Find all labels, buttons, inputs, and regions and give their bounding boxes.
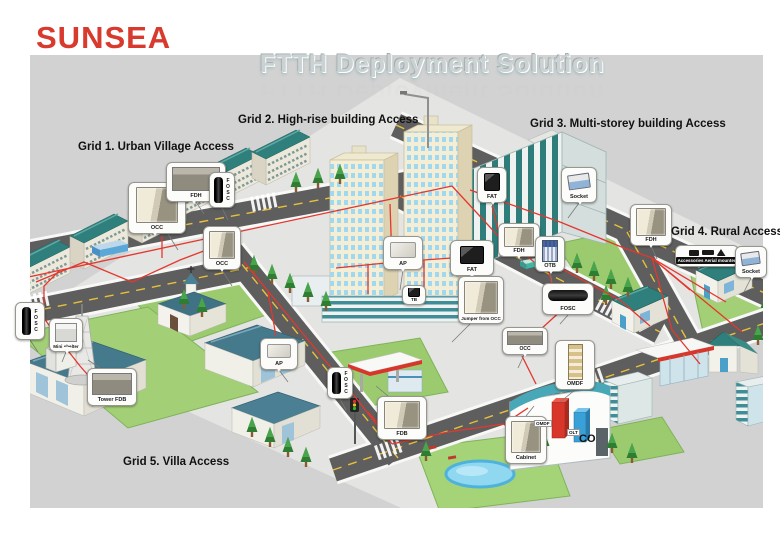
access-point-graphic (263, 341, 295, 361)
splice-closure-graphic (214, 177, 223, 203)
splice-closure-graphic (545, 286, 591, 306)
shelter-graphic (52, 321, 80, 344)
callout-label: Accessories Aerial mounted (676, 257, 739, 264)
callout-label: FOSC (560, 306, 575, 312)
callout-fosc-2: FOSC (542, 283, 594, 315)
access-point-graphic (386, 239, 420, 261)
callout-fosc-3: FOSC (15, 302, 45, 340)
aerial-accessories-graphic (678, 248, 736, 257)
callout-label: OCC (216, 261, 228, 267)
page-title: FTTH Deployment Solution (260, 50, 605, 79)
callout-label: OMDF (567, 381, 583, 387)
callout-label: TB (411, 297, 417, 302)
callout-label: FOSC (33, 309, 38, 333)
callout-otb: OTB (535, 236, 565, 272)
grid4-label: Grid 4. Rural Access (671, 226, 780, 238)
callout-label: Mini shelter (53, 344, 79, 349)
callout-omdf: OMDF (555, 340, 595, 390)
callout-label: Socket (570, 194, 588, 200)
callout-tower-fdb: Tower FDB (87, 368, 137, 406)
socket-graphic (738, 249, 764, 269)
callout-accessories: Accessories Aerial mounted (675, 245, 739, 267)
splice-closure-graphic (332, 372, 341, 394)
callout-label: Tower FDB (98, 397, 127, 403)
callout-label: FOSC (343, 371, 348, 395)
callout-label: AP (275, 361, 283, 367)
callout-fdh-2: FDH (498, 223, 540, 257)
callout-occ-3: OCC (502, 327, 548, 355)
omdf-rack-graphic (558, 343, 592, 381)
grid1-label: Grid 1. Urban Village Access (78, 141, 234, 153)
fat-device-graphic (453, 243, 491, 267)
sunsea-logo: SUNSEA (36, 20, 171, 56)
callout-jumper-from-occ: Jumper from OCC (458, 276, 504, 324)
fdh-cabinet-graphic (633, 207, 669, 237)
callout-label: FOSC (225, 178, 230, 202)
grid5-label: Grid 5. Villa Access (123, 456, 229, 468)
callout-socket-1: Socket (561, 167, 597, 203)
title-reflection: FTTH Deployment Solution (260, 78, 605, 107)
splice-closure-graphic (22, 307, 31, 335)
occ-cabinet-graphic (505, 330, 545, 347)
otb-splitter-graphic (538, 239, 562, 263)
grid3-label: Grid 3. Multi-storey building Access (530, 118, 726, 130)
jumper-cabinet-graphic (461, 279, 501, 316)
callout-label: OTB (544, 263, 556, 269)
callout-mini-shelter: Mini shelter (49, 318, 83, 352)
callout-label: Jumper from OCC (461, 316, 501, 321)
callout-fosc-4: FOSC (327, 367, 353, 399)
callout-ap-2: AP (260, 338, 298, 370)
fat-device-graphic (480, 170, 504, 194)
callout-socket-2: Socket (735, 246, 767, 278)
occ-cabinet-graphic (206, 229, 238, 261)
grid2-label: Grid 2. High-rise building Access (238, 114, 418, 126)
fdh-cabinet-graphic (501, 226, 537, 248)
callout-label: FAT (467, 267, 477, 273)
callout-occ-2: OCC (203, 226, 241, 270)
callout-label: FAT (487, 194, 497, 200)
olt-bar-tag: OLT (567, 429, 580, 436)
callout-label: AP (399, 261, 407, 267)
omdf-bar-tag: OMDF (534, 420, 552, 427)
central-office-label: CO (579, 433, 596, 445)
tower-fdb-graphic (90, 371, 134, 397)
callout-label: OCC (519, 347, 530, 353)
callout-label: FDH (513, 248, 524, 254)
callout-fosc-1: FOSC (209, 172, 235, 208)
callout-label: Cabinet (516, 455, 536, 461)
callout-tb: TB (402, 285, 426, 305)
callout-label: FDH (190, 193, 201, 199)
callout-label: Socket (742, 269, 760, 275)
callout-fdh-3: FDH (630, 204, 672, 246)
callout-label: OCC (151, 225, 163, 231)
callout-label: FDH (645, 237, 656, 243)
callout-fat-1: FAT (450, 240, 494, 276)
callout-fdb: FDB (377, 396, 427, 440)
ftth-deployment-diagram: SUNSEA FTTH Deployment Solution FTTH Dep… (0, 0, 780, 534)
callout-fat-2: FAT (477, 167, 507, 203)
socket-graphic (564, 170, 594, 194)
terminal-box-graphic (405, 288, 423, 297)
fdb-cabinet-graphic (380, 399, 424, 431)
callout-label: FDB (396, 431, 407, 437)
callout-ap-1: AP (383, 236, 423, 270)
